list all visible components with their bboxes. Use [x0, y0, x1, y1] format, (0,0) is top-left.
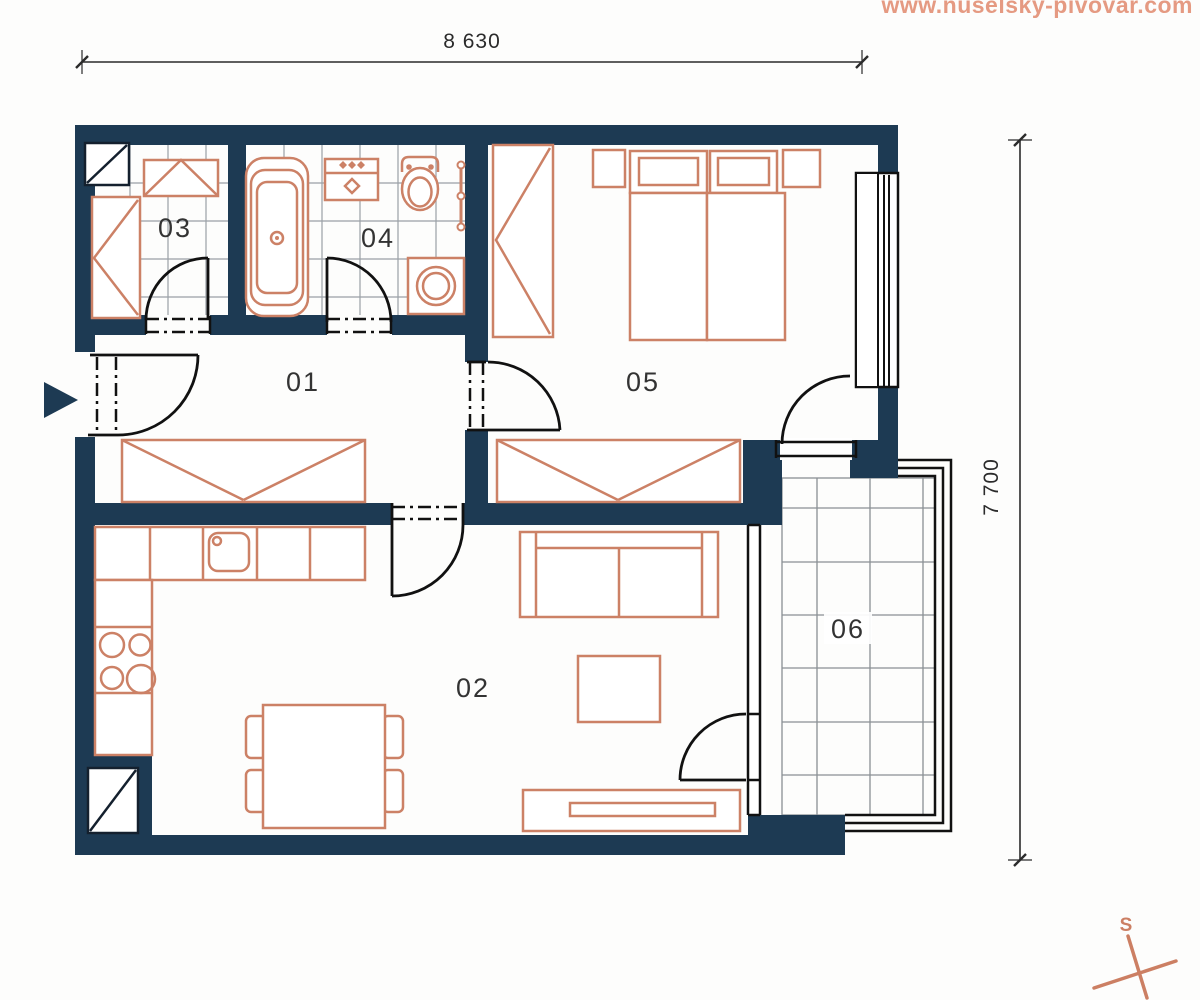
room-label-balcony: 06 [831, 614, 865, 644]
room-label-bathroom: 04 [361, 223, 395, 253]
shaft-top-left [85, 143, 129, 185]
bedroom-window [856, 173, 898, 387]
wardrobe-hall [122, 440, 365, 502]
dimension-right: 7 700 [980, 134, 1032, 866]
room-label-bedroom: 05 [626, 367, 660, 397]
balcony-tile-grid [782, 478, 935, 815]
wardrobe-closet-left [92, 197, 140, 318]
shaft-bottom-left [88, 768, 138, 833]
bathtub [246, 158, 308, 316]
sofa [520, 532, 718, 617]
bathroom-sink [325, 159, 378, 200]
door-hall-bedroom [467, 362, 560, 430]
floor-plan-page: 01 02 03 04 05 06 8 630 7 700 www.nusels… [0, 0, 1200, 1000]
bed-double [593, 150, 820, 340]
door-hall-living [392, 503, 463, 596]
door-living-balcony [680, 714, 746, 780]
balcony-glass-wall-living [744, 525, 766, 815]
dining-table-chairs [246, 705, 403, 828]
door-closet [146, 258, 208, 320]
floor-plan-drawing: 01 02 03 04 05 06 8 630 7 700 www.nusels… [0, 0, 1200, 1000]
compass: S [1094, 915, 1176, 998]
dimension-width-label: 8 630 [443, 30, 501, 53]
door-entry [88, 355, 198, 435]
furniture [92, 145, 820, 831]
tv-stand [523, 790, 740, 831]
door-bedroom-balcony [782, 376, 850, 444]
balcony-glass-door-bedroom [776, 438, 856, 460]
entry-arrow-icon [44, 382, 78, 418]
door-bathroom [327, 258, 391, 322]
washing-machine [408, 258, 464, 314]
dimension-height-label: 7 700 [980, 458, 1003, 516]
dimension-top: 8 630 [76, 30, 868, 74]
room-label-closet: 03 [158, 213, 192, 243]
room-label-hall: 01 [286, 367, 320, 397]
wardrobe-bedroom-bottom [497, 440, 740, 502]
watermark-text: www.nuselsky-pivovar.com [880, 0, 1193, 18]
compass-north-label: S [1120, 915, 1133, 936]
coffee-table [578, 656, 660, 722]
wardrobe-bedroom-left [493, 145, 553, 337]
toilet [402, 157, 438, 210]
room-label-living: 02 [456, 673, 490, 703]
wardrobe-closet-top [144, 160, 218, 196]
towel-radiator [458, 162, 465, 231]
